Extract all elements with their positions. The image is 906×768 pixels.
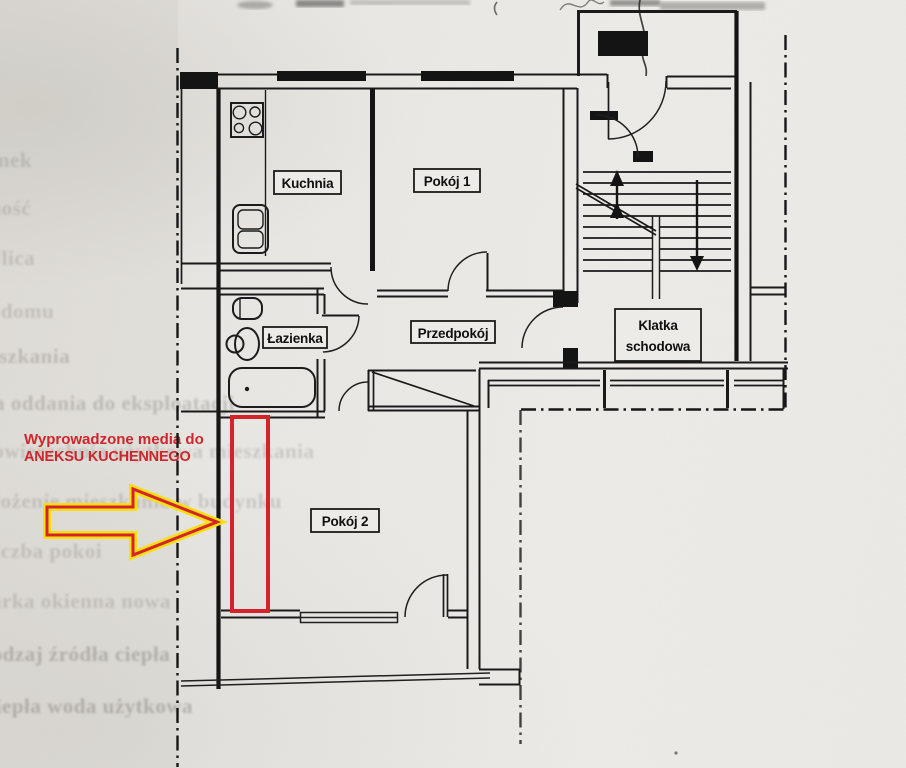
svg-text:Kuchnia: Kuchnia [282, 176, 335, 191]
svg-text:schodowa: schodowa [626, 339, 691, 354]
window-kitchen [277, 71, 366, 81]
room-label-pokoj1: Pokój 1 [414, 169, 480, 192]
floorplan-drawing: Kuchnia Pokój 1 Łazienka Przedpokój Klat… [0, 0, 906, 768]
svg-text:Pokój 1: Pokój 1 [424, 174, 471, 189]
paper-speck [674, 751, 677, 754]
room-label-lazienka: Łazienka [263, 327, 327, 348]
room-label-kuchnia: Kuchnia [274, 171, 341, 194]
svg-text:Klatka: Klatka [638, 318, 678, 333]
room-label-pokoj2: Pokój 2 [311, 509, 379, 532]
scanned-floorplan-page: Budynek Własność Ulica Nr domu Nr mieszk… [0, 0, 906, 768]
shaft-marker [598, 31, 648, 56]
svg-text:Pokój 2: Pokój 2 [322, 514, 369, 529]
window-room1 [421, 71, 514, 81]
room-label-klatka-schodowa: Klatka schodowa [615, 309, 701, 361]
room-label-przedpokoj: Przedpokój [411, 321, 495, 343]
svg-text:Przedpokój: Przedpokój [418, 326, 489, 341]
svg-text:Łazienka: Łazienka [267, 331, 323, 346]
paper-noise [0, 0, 906, 768]
